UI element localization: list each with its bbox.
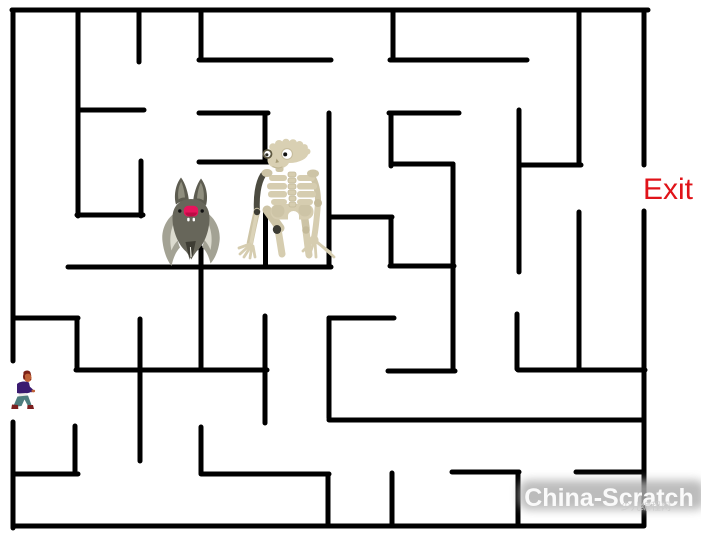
svg-text:Exit: Exit — [643, 173, 694, 206]
svg-text:少儿编程网: 少儿编程网 — [621, 500, 671, 513]
